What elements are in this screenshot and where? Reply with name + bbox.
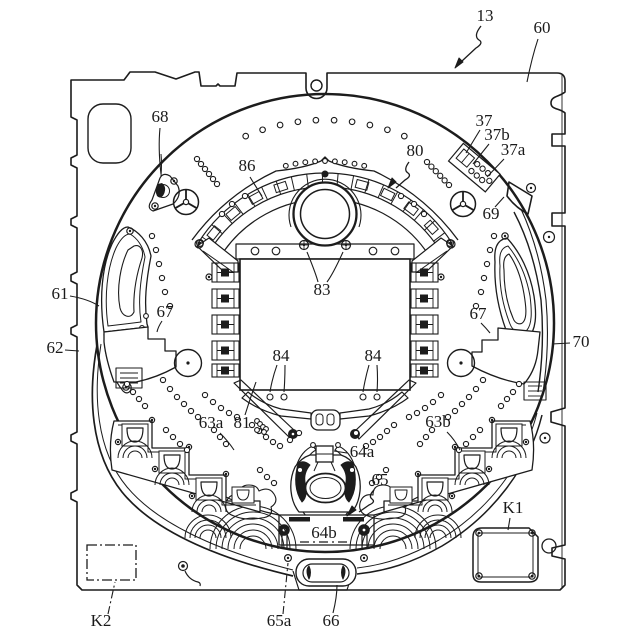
svg-text:81: 81	[234, 413, 251, 432]
svg-text:80: 80	[407, 141, 424, 160]
svg-text:70: 70	[573, 332, 590, 351]
svg-text:K1: K1	[503, 498, 524, 517]
svg-text:84: 84	[365, 346, 383, 365]
svg-text:60: 60	[534, 18, 551, 37]
svg-text:65a: 65a	[267, 611, 292, 630]
svg-text:64b: 64b	[311, 523, 337, 542]
svg-text:67: 67	[157, 302, 175, 321]
svg-text:86: 86	[239, 156, 256, 175]
svg-text:84: 84	[273, 346, 291, 365]
svg-text:69: 69	[483, 204, 500, 223]
svg-text:63a: 63a	[199, 413, 224, 432]
svg-text:62: 62	[47, 338, 64, 357]
svg-text:67: 67	[470, 304, 488, 323]
svg-text:65: 65	[372, 470, 389, 489]
svg-text:68: 68	[152, 107, 169, 126]
svg-text:83: 83	[314, 280, 331, 299]
svg-text:61: 61	[52, 284, 69, 303]
svg-text:63b: 63b	[425, 412, 451, 431]
svg-text:66: 66	[323, 611, 340, 630]
svg-text:37a: 37a	[501, 140, 526, 159]
svg-text:13: 13	[477, 6, 494, 25]
svg-text:64a: 64a	[350, 442, 375, 461]
